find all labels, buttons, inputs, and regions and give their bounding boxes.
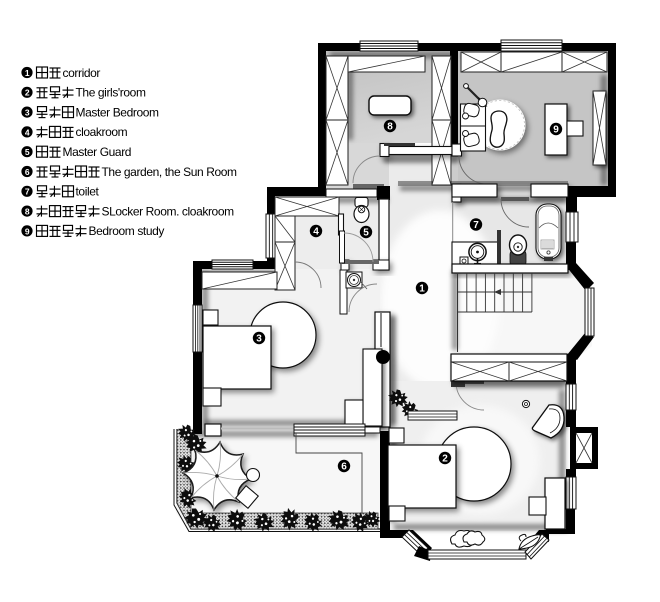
svg-text:7: 7 <box>25 187 30 197</box>
svg-text:1: 1 <box>419 284 425 295</box>
svg-text:2: 2 <box>25 88 30 98</box>
svg-text:4: 4 <box>313 227 319 238</box>
svg-text:7: 7 <box>473 220 479 231</box>
svg-text:toilet: toilet <box>76 185 100 199</box>
svg-text:8: 8 <box>387 122 393 133</box>
svg-text:8: 8 <box>25 207 30 217</box>
svg-text:4: 4 <box>25 127 30 137</box>
svg-text:5: 5 <box>25 147 30 157</box>
svg-text:3: 3 <box>256 334 262 345</box>
svg-text:SLocker Room. cloakroom: SLocker Room. cloakroom <box>102 204 235 218</box>
svg-text:9: 9 <box>25 226 30 236</box>
svg-text:6: 6 <box>25 167 30 177</box>
svg-text:9: 9 <box>553 125 559 136</box>
svg-text:5: 5 <box>363 228 369 239</box>
svg-text:6: 6 <box>341 462 347 473</box>
svg-text:2: 2 <box>442 454 448 465</box>
svg-text:3: 3 <box>25 108 30 118</box>
svg-text:Bedroom study: Bedroom study <box>89 224 165 238</box>
svg-text:corridor: corridor <box>63 66 101 80</box>
svg-text:Master Guard: Master Guard <box>63 145 132 159</box>
svg-text:1: 1 <box>25 68 30 78</box>
svg-text:The garden, the Sun Room: The garden, the Sun Room <box>102 165 238 179</box>
svg-text:Master Bedroom: Master Bedroom <box>76 105 160 119</box>
svg-text:The girls'room: The girls'room <box>76 86 146 100</box>
svg-text:cloakroom: cloakroom <box>76 125 128 139</box>
